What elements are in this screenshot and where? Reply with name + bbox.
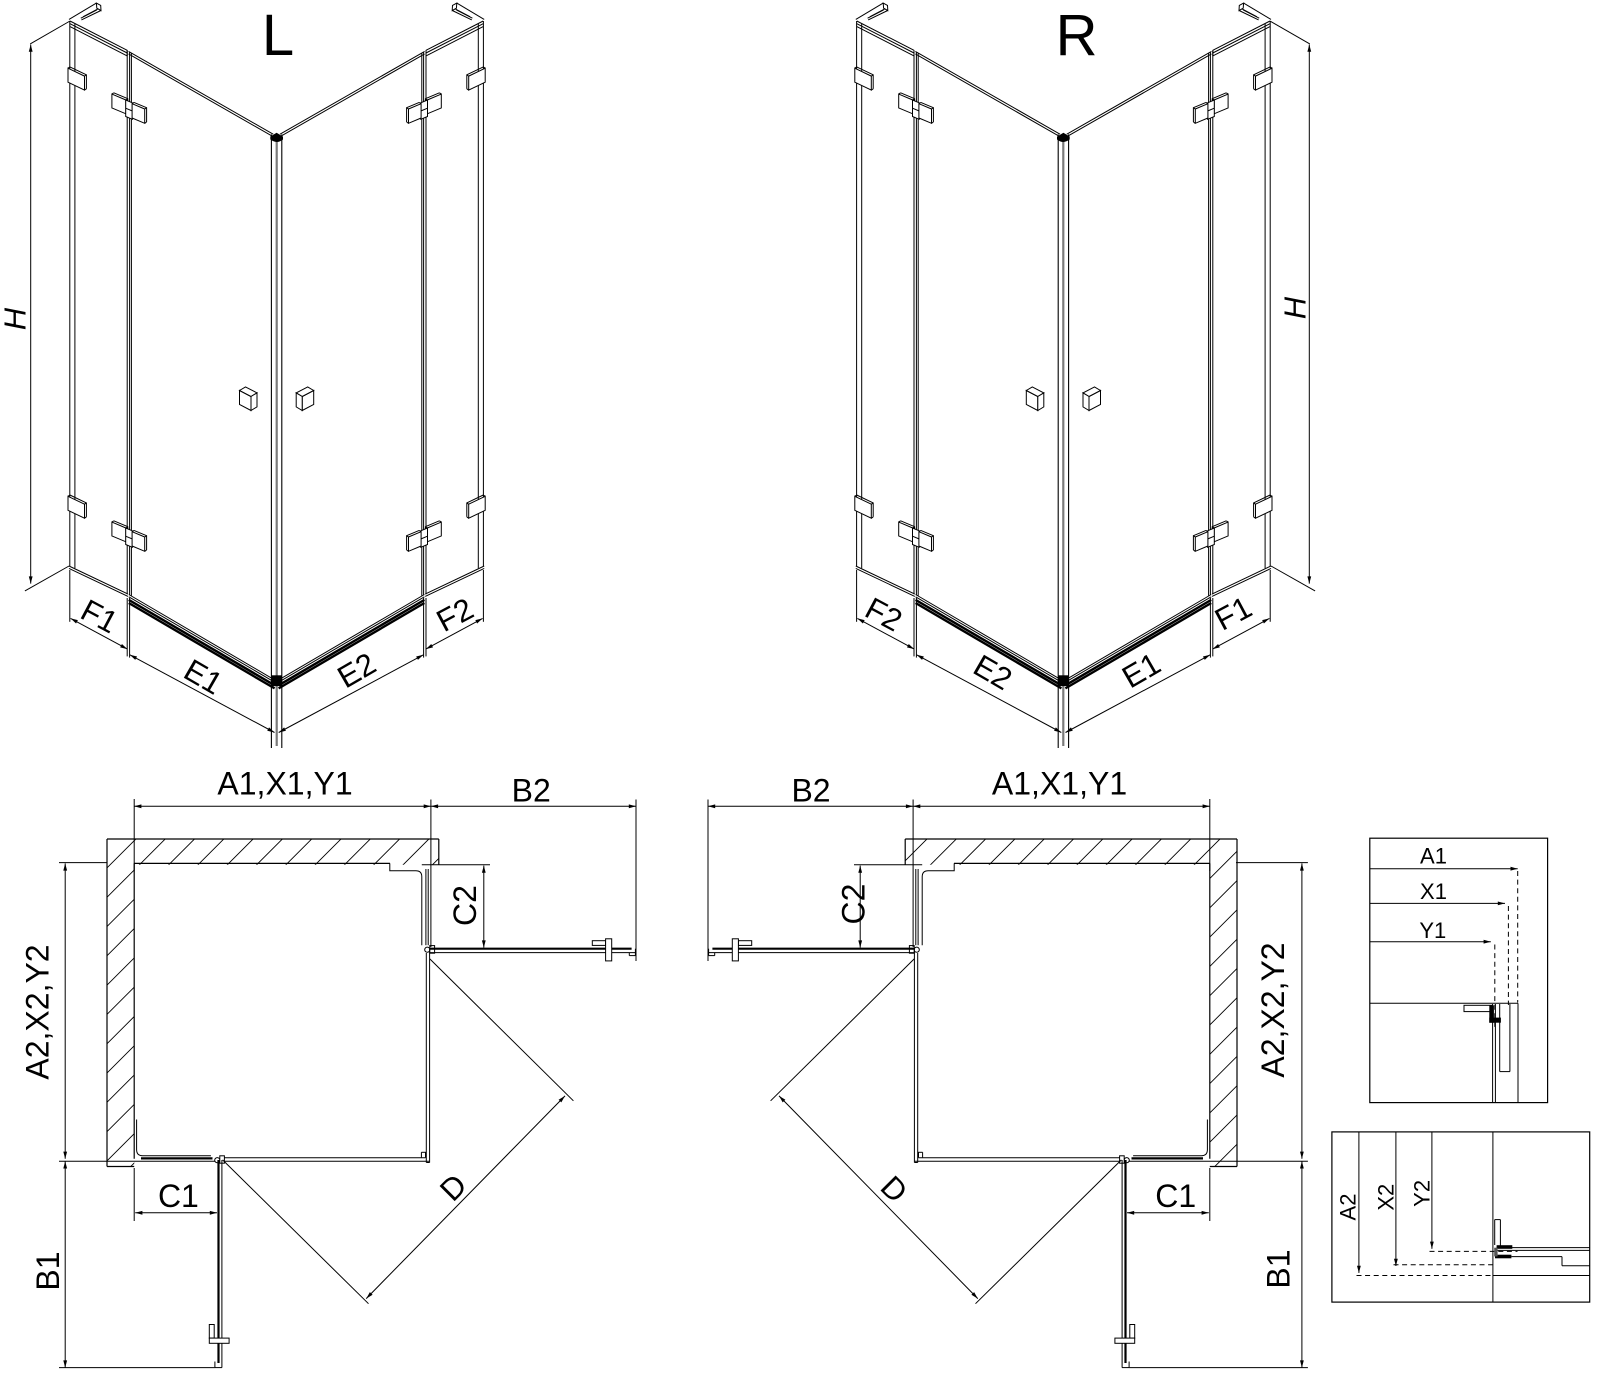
svg-text:A1,X1,Y1: A1,X1,Y1 <box>217 766 352 802</box>
svg-text:A1,X1,Y1: A1,X1,Y1 <box>992 766 1127 802</box>
svg-text:B1: B1 <box>1261 1249 1297 1288</box>
svg-text:A2,X2,Y2: A2,X2,Y2 <box>1255 942 1291 1077</box>
svg-text:X1: X1 <box>1420 879 1447 904</box>
svg-text:F1: F1 <box>1209 589 1257 637</box>
svg-text:R: R <box>1056 3 1098 68</box>
svg-text:A1: A1 <box>1420 844 1447 869</box>
svg-text:E1: E1 <box>178 652 228 701</box>
svg-text:H: H <box>1277 296 1312 319</box>
svg-text:H: H <box>0 307 32 330</box>
svg-text:F2: F2 <box>860 590 908 638</box>
svg-text:F1: F1 <box>75 592 123 640</box>
svg-text:B2: B2 <box>791 773 830 809</box>
svg-text:C2: C2 <box>447 885 483 926</box>
svg-text:F2: F2 <box>431 591 479 639</box>
svg-text:C1: C1 <box>158 1178 199 1214</box>
svg-text:A2,X2,Y2: A2,X2,Y2 <box>20 944 56 1079</box>
svg-text:Y2: Y2 <box>1410 1180 1435 1207</box>
svg-text:B1: B1 <box>30 1251 66 1290</box>
svg-text:C2: C2 <box>836 884 872 925</box>
svg-text:C1: C1 <box>1155 1178 1196 1214</box>
svg-text:D: D <box>433 1167 474 1208</box>
svg-text:Y1: Y1 <box>1419 918 1446 943</box>
svg-text:D: D <box>874 1169 915 1210</box>
svg-text:X2: X2 <box>1374 1184 1399 1211</box>
svg-text:L: L <box>262 3 294 68</box>
svg-text:B2: B2 <box>512 773 551 809</box>
svg-text:A2: A2 <box>1336 1194 1361 1221</box>
